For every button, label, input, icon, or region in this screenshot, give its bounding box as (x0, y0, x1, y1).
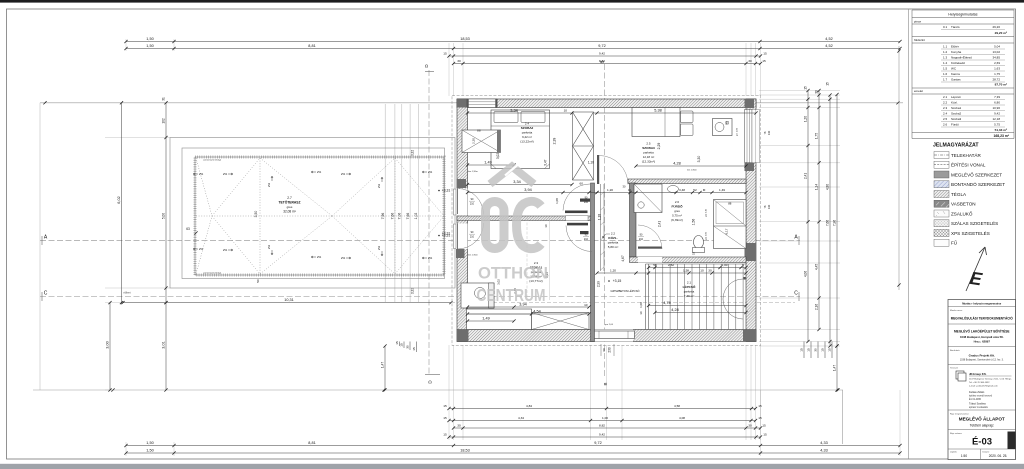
svg-text:18,53: 18,53 (460, 448, 470, 452)
svg-text:2,99: 2,99 (597, 281, 601, 287)
svg-text:140: 140 (767, 204, 771, 209)
svg-text:10: 10 (544, 224, 548, 228)
svg-text:1,00: 1,00 (639, 302, 643, 308)
svg-text:1,49: 1,49 (482, 316, 489, 320)
svg-text:30: 30 (406, 345, 410, 349)
svg-text:15: 15 (763, 51, 767, 55)
svg-text:168,23 m²: 168,23 m² (994, 134, 1010, 138)
svg-text:4,28: 4,28 (673, 161, 680, 165)
svg-text:4,08: 4,08 (679, 416, 685, 420)
svg-text:1.4: 1.4 (943, 61, 948, 65)
svg-text:15: 15 (821, 348, 825, 352)
svg-text:4,54: 4,54 (533, 309, 540, 313)
svg-text:15: 15 (828, 348, 832, 352)
svg-text:13,02: 13,02 (992, 50, 1000, 54)
svg-text:bm 1,90m: bm 1,90m (468, 171, 478, 173)
svg-text:2020. 06. 25.: 2020. 06. 25. (989, 454, 1008, 458)
svg-text:10,96: 10,96 (992, 106, 1000, 110)
svg-text:4,80: 4,80 (826, 184, 830, 190)
svg-text:4,28: 4,28 (671, 308, 678, 312)
svg-text:1,08: 1,08 (555, 198, 559, 204)
svg-text:2%: 2% (267, 245, 271, 250)
svg-text:1,50: 1,50 (146, 44, 153, 48)
svg-text:210: 210 (584, 201, 589, 204)
svg-text:30: 30 (457, 423, 461, 427)
svg-text:4,34: 4,34 (518, 416, 524, 420)
svg-text:+3,15: +3,15 (613, 279, 622, 283)
svg-text:15: 15 (443, 51, 447, 55)
svg-text:5,80 m²: 5,80 m² (608, 245, 619, 249)
svg-text:M: M (703, 188, 706, 192)
svg-text:63: 63 (186, 227, 190, 231)
svg-text:1,75: 1,75 (994, 72, 1000, 76)
svg-text:2,39: 2,39 (552, 138, 556, 145)
svg-text:Közlekedő: Közlekedő (951, 61, 965, 65)
svg-text:18,53: 18,53 (460, 37, 470, 41)
svg-text:33: 33 (692, 252, 696, 256)
svg-text:1,49: 1,49 (484, 160, 491, 164)
svg-text:1,50: 1,50 (146, 37, 153, 41)
svg-text:Gradus Projekt Kft.: Gradus Projekt Kft. (969, 354, 996, 358)
svg-text:1,56: 1,56 (692, 219, 696, 226)
svg-text:2%: 2% (317, 170, 322, 174)
svg-text:2,52: 2,52 (668, 263, 674, 267)
svg-text:Hrsz.: 62897: Hrsz.: 62897 (974, 340, 991, 344)
svg-text:50: 50 (653, 263, 657, 267)
svg-text:FÜRDŐ: FÜRDŐ (672, 204, 684, 209)
svg-text:50: 50 (256, 279, 260, 283)
svg-text:2%: 2% (223, 172, 228, 176)
svg-text:1,14: 1,14 (815, 184, 819, 190)
svg-text:29,20 m²: 29,20 m² (995, 31, 1007, 35)
svg-text:gres: gres (287, 205, 293, 209)
svg-text:0.1: 0.1 (943, 25, 948, 29)
svg-text:ÉPÍTÉSI VONAL: ÉPÍTÉSI VONAL (951, 162, 986, 168)
svg-text:2%: 2% (317, 255, 322, 259)
svg-text:bm 1,90m: bm 1,90m (468, 255, 478, 257)
svg-text:3,01: 3,01 (162, 341, 166, 348)
svg-text:Lépcső: Lépcső (951, 95, 961, 99)
svg-text:8,82: 8,82 (599, 423, 605, 427)
svg-text:88: 88 (728, 201, 732, 205)
svg-text:15: 15 (762, 59, 766, 63)
svg-text:140: 140 (767, 130, 771, 135)
svg-text:2%: 2% (199, 247, 204, 251)
svg-text:4,33: 4,33 (820, 441, 827, 445)
svg-text:2,41: 2,41 (804, 173, 808, 179)
svg-text:pm 1,90: pm 1,90 (705, 231, 707, 239)
svg-text:34,85: 34,85 (992, 56, 1000, 60)
svg-text:15: 15 (400, 343, 404, 347)
svg-text:2.1: 2.1 (943, 95, 948, 99)
svg-text:7,66: 7,66 (826, 220, 830, 226)
svg-text:pm 1,00: pm 1,00 (737, 127, 739, 136)
svg-text:SZÁLAS SZIGETELÉS: SZÁLAS SZIGETELÉS (951, 220, 998, 226)
svg-text:MEGLÉVŐ ÁLLAPOT: MEGLÉVŐ ÁLLAPOT (959, 415, 1005, 422)
svg-text:B: B (603, 382, 608, 385)
svg-text:2,20: 2,20 (472, 138, 476, 144)
svg-text:4,67: 4,67 (621, 255, 625, 261)
svg-text:CENTRUM: CENTRUM (477, 285, 546, 305)
svg-text:5,75 m²: 5,75 m² (672, 214, 682, 218)
svg-text:210: 210 (470, 236, 475, 239)
svg-text:210: 210 (470, 203, 475, 206)
svg-text:(6,39m²): (6,39m²) (671, 218, 683, 222)
svg-text:4,52: 4,52 (825, 37, 832, 41)
svg-text:É1 01-4095: É1 01-4095 (969, 398, 982, 401)
svg-text:6: 6 (742, 263, 744, 267)
svg-text:gres: gres (674, 209, 680, 213)
svg-text:WC: WC (951, 67, 957, 71)
svg-text:3,34: 3,34 (510, 108, 517, 112)
svg-text:OTTHON: OTTHON (478, 264, 548, 283)
svg-text:60: 60 (579, 182, 583, 186)
svg-text:földszint: földszint (914, 38, 925, 42)
svg-text:1038 Budapest, Szentendrei út: 1038 Budapest, Szentendrei út 12. fsz. 3… (960, 359, 1004, 362)
svg-text:31: 31 (162, 97, 166, 101)
svg-text:10: 10 (564, 109, 568, 113)
svg-text:MEGVALÓSULÁSI TERVDOKUMENTÁCIÓ: MEGVALÓSULÁSI TERVDOKUMENTÁCIÓ (951, 316, 1013, 321)
svg-text:8,81: 8,81 (308, 441, 315, 445)
svg-text:6,17: 6,17 (725, 228, 729, 234)
svg-text:15: 15 (412, 347, 416, 351)
svg-text:1.3: 1.3 (943, 56, 948, 60)
svg-text:1.7: 1.7 (943, 78, 948, 82)
svg-text:1,20: 1,20 (804, 116, 808, 122)
svg-text:32,08 m²: 32,08 m² (283, 210, 296, 214)
svg-text:+3,31: +3,31 (442, 232, 451, 236)
svg-text:Garázs: Garázs (951, 78, 961, 82)
svg-text:KÖZL.: KÖZL. (608, 236, 617, 240)
svg-text:15: 15 (800, 348, 804, 352)
svg-text:1:50: 1:50 (961, 454, 967, 458)
svg-text:30: 30 (815, 90, 819, 94)
svg-text:3,47: 3,47 (544, 159, 548, 165)
svg-text:1.2: 1.2 (943, 50, 948, 54)
svg-text:51,33 m²: 51,33 m² (995, 128, 1007, 132)
svg-text:1,18: 1,18 (598, 214, 602, 220)
svg-text:15: 15 (758, 404, 762, 408)
svg-text:30: 30 (748, 423, 752, 427)
svg-text:10: 10 (700, 268, 704, 272)
svg-text:1038 Budapest, Hunyadi utca 58: 1038 Budapest, Hunyadi utca 58. (960, 335, 1004, 339)
svg-text:210: 210 (584, 238, 589, 241)
svg-text:3,32: 3,32 (411, 150, 415, 156)
svg-text:1,20: 1,20 (610, 268, 616, 272)
svg-text:Előtér: Előtér (951, 45, 959, 49)
svg-text:C: C (44, 291, 48, 297)
svg-text:7,96: 7,96 (833, 220, 837, 226)
svg-text:SZOBA3: SZOBA3 (642, 146, 655, 150)
svg-text:5,75: 5,75 (994, 123, 1000, 127)
svg-text:2,16: 2,16 (815, 304, 819, 310)
svg-text:1,00: 1,00 (721, 263, 727, 267)
svg-text:7,39 m²: 7,39 m² (684, 294, 695, 298)
svg-text:pm 3,10: pm 3,10 (705, 208, 707, 216)
svg-text:(12,32m²): (12,32m²) (642, 160, 655, 164)
svg-text:parketta: parketta (608, 241, 619, 245)
svg-text:9,72: 9,72 (598, 44, 605, 48)
svg-text:C: C (794, 291, 798, 297)
svg-text:BONTANDÓ SZERKEZET: BONTANDÓ SZERKEZET (951, 181, 1005, 187)
svg-text:90: 90 (724, 121, 728, 125)
svg-text:Fürdő: Fürdő (951, 123, 959, 127)
svg-text:Szoba2: Szoba2 (951, 112, 962, 116)
svg-text:2,29: 2,29 (657, 143, 661, 150)
svg-text:4,45: 4,45 (815, 264, 819, 270)
svg-text:Tóásó Szabina: Tóásó Szabina (969, 403, 986, 406)
svg-text:3,34: 3,34 (513, 180, 520, 184)
svg-text:2%: 2% (428, 256, 433, 260)
svg-text:MEGLÉVŐ SZERKEZET: MEGLÉVŐ SZERKEZET (951, 171, 1002, 177)
svg-text:Nappali+Étkező: Nappali+Étkező (951, 55, 972, 60)
svg-text:8,82: 8,82 (599, 59, 605, 63)
svg-text:10: 10 (584, 303, 588, 307)
svg-text:2%: 2% (341, 256, 346, 260)
svg-text:3,32: 3,32 (411, 288, 415, 294)
svg-text:230: 230 (608, 347, 612, 353)
svg-text:1,50: 1,50 (146, 448, 153, 452)
svg-text:2.3: 2.3 (943, 106, 948, 110)
svg-text:2.5: 2.5 (943, 117, 948, 121)
svg-text:2%: 2% (267, 183, 271, 188)
svg-text:Lépték:: Lépték: (950, 451, 958, 454)
svg-text:4,33: 4,33 (820, 448, 827, 452)
svg-text:30: 30 (814, 348, 818, 352)
svg-text:XPS SZIGETELÉS: XPS SZIGETELÉS (951, 230, 990, 236)
svg-text:2%: 2% (199, 172, 204, 176)
svg-text:1,00: 1,00 (602, 416, 608, 420)
svg-text:7,66: 7,66 (406, 213, 410, 220)
svg-text:1,63: 1,63 (994, 67, 1000, 71)
svg-text:1,10: 1,10 (588, 161, 594, 165)
svg-text:6,02: 6,02 (117, 196, 121, 203)
svg-text:102: 102 (162, 118, 166, 124)
svg-text:Rajz száma:: Rajz száma: (950, 433, 962, 435)
svg-text:Farkas Zoltán: Farkas Zoltán (969, 391, 985, 394)
svg-text:1,20: 1,20 (607, 188, 613, 192)
svg-text:15: 15 (443, 404, 447, 408)
svg-text:Kamra: Kamra (951, 72, 960, 76)
svg-text:TÉGLA: TÉGLA (951, 191, 967, 197)
svg-text:6,80: 6,80 (994, 101, 1000, 105)
svg-text:Tetőtéri alaprajz: Tetőtéri alaprajz (970, 424, 994, 428)
svg-text:1.6: 1.6 (943, 72, 948, 76)
svg-text:9,42: 9,42 (994, 112, 1000, 116)
svg-text:15: 15 (443, 416, 447, 420)
svg-text:2.1: 2.1 (687, 281, 692, 285)
svg-text:Beruházó:: Beruházó: (950, 349, 960, 352)
svg-text:FŰ: FŰ (951, 240, 957, 246)
svg-text:1,47: 1,47 (381, 362, 385, 368)
svg-text:Szoba3: Szoba3 (951, 117, 962, 121)
svg-text:parketta: parketta (643, 151, 654, 155)
svg-text:9,42: 9,42 (599, 51, 605, 55)
svg-text:MEGLÉVŐ LAKÓÉPÜLET BŐVÍTÉSE: MEGLÉVŐ LAKÓÉPÜLET BŐVÍTÉSE (954, 329, 1009, 334)
svg-text:JKGroup Kft.: JKGroup Kft. (969, 372, 987, 376)
svg-text:Munka neve:: Munka neve: (950, 310, 963, 312)
svg-text:2%: 2% (428, 170, 433, 174)
svg-text:1,75: 1,75 (815, 133, 819, 139)
svg-text:e-mail: j.zoltan57@gmail.com: e-mail: j.zoltan57@gmail.com (969, 385, 998, 388)
svg-text:SZOBA2: SZOBA2 (521, 126, 534, 130)
svg-text:5,38: 5,38 (654, 108, 661, 112)
svg-text:10,31: 10,31 (284, 298, 294, 302)
svg-text:5,04: 5,04 (994, 45, 1000, 49)
svg-text:Tel: +36 70 366 4532: Tel: +36 70 366 4532 (969, 382, 990, 384)
svg-text:8,81: 8,81 (308, 44, 315, 48)
svg-text:2,41: 2,41 (658, 221, 662, 227)
svg-text:29,20: 29,20 (992, 25, 1000, 29)
svg-text:15: 15 (763, 432, 767, 436)
svg-text:Munka + helyszín megnevezése: Munka + helyszín megnevezése (962, 302, 1002, 306)
svg-text:15: 15 (804, 86, 808, 90)
svg-text:bm 1,90m: bm 1,90m (687, 170, 697, 172)
svg-text:15: 15 (443, 432, 447, 436)
svg-text:12,18 m²: 12,18 m² (643, 155, 654, 159)
svg-text:28,72: 28,72 (992, 78, 1000, 82)
svg-text:2.6: 2.6 (943, 123, 948, 127)
svg-text:pince: pince (914, 20, 922, 24)
svg-text:2%: 2% (377, 246, 381, 251)
svg-text:parketta: parketta (684, 290, 695, 294)
svg-text:TETŐTERASZ: TETŐTERASZ (279, 200, 301, 205)
svg-text:2.6: 2.6 (675, 200, 680, 204)
svg-text:(13,22m²): (13,22m²) (520, 140, 533, 144)
svg-text:1,47: 1,47 (833, 365, 837, 371)
svg-text:10: 10 (639, 311, 643, 315)
svg-text:5,00: 5,00 (162, 213, 166, 219)
svg-text:15: 15 (826, 82, 830, 86)
svg-text:építész vezető tervező: építész vezető tervező (969, 395, 993, 398)
svg-text:szintentartó lefolyó: szintentartó lefolyó (203, 158, 222, 161)
svg-text:emelet: emelet (914, 89, 923, 93)
svg-text:1.5: 1.5 (943, 67, 948, 71)
svg-text:87,70 m²: 87,70 m² (995, 83, 1007, 87)
svg-text:30: 30 (708, 268, 712, 272)
svg-text:2.4: 2.4 (943, 112, 948, 116)
svg-text:építész munkatárs: építész munkatárs (969, 406, 989, 409)
svg-text:Tervező:: Tervező: (950, 367, 959, 370)
svg-text:9,42: 9,42 (599, 432, 605, 436)
svg-text:4,84: 4,84 (526, 404, 532, 408)
svg-text:előkert: előkert (123, 292, 131, 295)
svg-text:9,42 m²: 9,42 m² (522, 135, 532, 139)
svg-text:4,78: 4,78 (663, 301, 670, 305)
svg-text:Konyha: Konyha (951, 50, 962, 54)
svg-text:ZSALUKŐ: ZSALUKŐ (951, 210, 973, 216)
svg-text:2%: 2% (341, 172, 346, 176)
svg-text:Tároló: Tároló (951, 25, 960, 29)
svg-text:15: 15 (762, 423, 766, 427)
svg-text:52: 52 (693, 188, 697, 192)
svg-text:1,50: 1,50 (146, 441, 153, 445)
svg-text:4,06: 4,06 (804, 271, 808, 277)
svg-text:2.2: 2.2 (943, 101, 948, 105)
svg-text:1,58: 1,58 (683, 268, 689, 272)
svg-text:Rajz megnevezése:: Rajz megnevezése: (950, 414, 970, 416)
svg-text:1.1: 1.1 (943, 45, 948, 49)
svg-text:2%: 2% (377, 184, 381, 189)
svg-text:szintentartó lefolyó: szintentartó lefolyó (203, 272, 222, 275)
svg-text:4,58: 4,58 (674, 404, 680, 408)
svg-text:Szoba1: Szoba1 (951, 106, 962, 110)
svg-text:2.4: 2.4 (525, 122, 530, 126)
svg-text:3,02: 3,02 (496, 153, 500, 159)
svg-text:1,49: 1,49 (719, 188, 725, 192)
svg-text:15: 15 (758, 416, 762, 420)
svg-text:210: 210 (639, 238, 644, 241)
svg-text:parketta: parketta (522, 131, 533, 135)
svg-text:7,39: 7,39 (994, 95, 1000, 99)
svg-text:1147 Budapest, Gervay u 9-11.: 1147 Budapest, Gervay u 9-11. Cs/4 761/g… (969, 378, 1012, 381)
svg-text:3,00: 3,00 (106, 341, 110, 348)
svg-text:9,72: 9,72 (594, 441, 601, 445)
svg-text:2,69: 2,69 (994, 61, 1000, 65)
svg-text:2.5: 2.5 (646, 142, 651, 146)
svg-text:2.2: 2.2 (611, 232, 616, 236)
svg-text:3,50: 3,50 (254, 211, 258, 218)
svg-text:3,94: 3,94 (524, 188, 531, 192)
svg-text:2.7: 2.7 (287, 196, 292, 200)
svg-text:3,30: 3,30 (697, 156, 701, 163)
svg-text:LÉPCSŐ: LÉPCSŐ (683, 284, 696, 289)
svg-text:15: 15 (807, 348, 811, 352)
svg-text:TELEKHATÁR: TELEKHATÁR (951, 152, 981, 158)
svg-text:Helyiségkimutatás: Helyiségkimutatás (948, 13, 977, 17)
svg-text:30: 30 (748, 59, 752, 63)
svg-text:90: 90 (602, 348, 606, 352)
svg-text:15: 15 (395, 341, 399, 345)
svg-text:30: 30 (457, 59, 461, 63)
svg-text:2%: 2% (223, 248, 228, 252)
svg-text:JELMAGYARÁZAT: JELMAGYARÁZAT (933, 142, 979, 149)
svg-text:12,18: 12,18 (992, 117, 1000, 121)
svg-text:88: 88 (477, 129, 481, 133)
svg-text:+3,31: +3,31 (442, 189, 451, 193)
svg-text:Közl.: Közl. (951, 101, 958, 105)
svg-text:VASBETON: VASBETON (951, 202, 976, 207)
svg-text:pm 2,06: pm 2,06 (605, 324, 614, 326)
svg-text:4,52: 4,52 (825, 44, 832, 48)
svg-text:É-03: É-03 (972, 437, 992, 448)
svg-text:3,48: 3,48 (679, 188, 685, 192)
